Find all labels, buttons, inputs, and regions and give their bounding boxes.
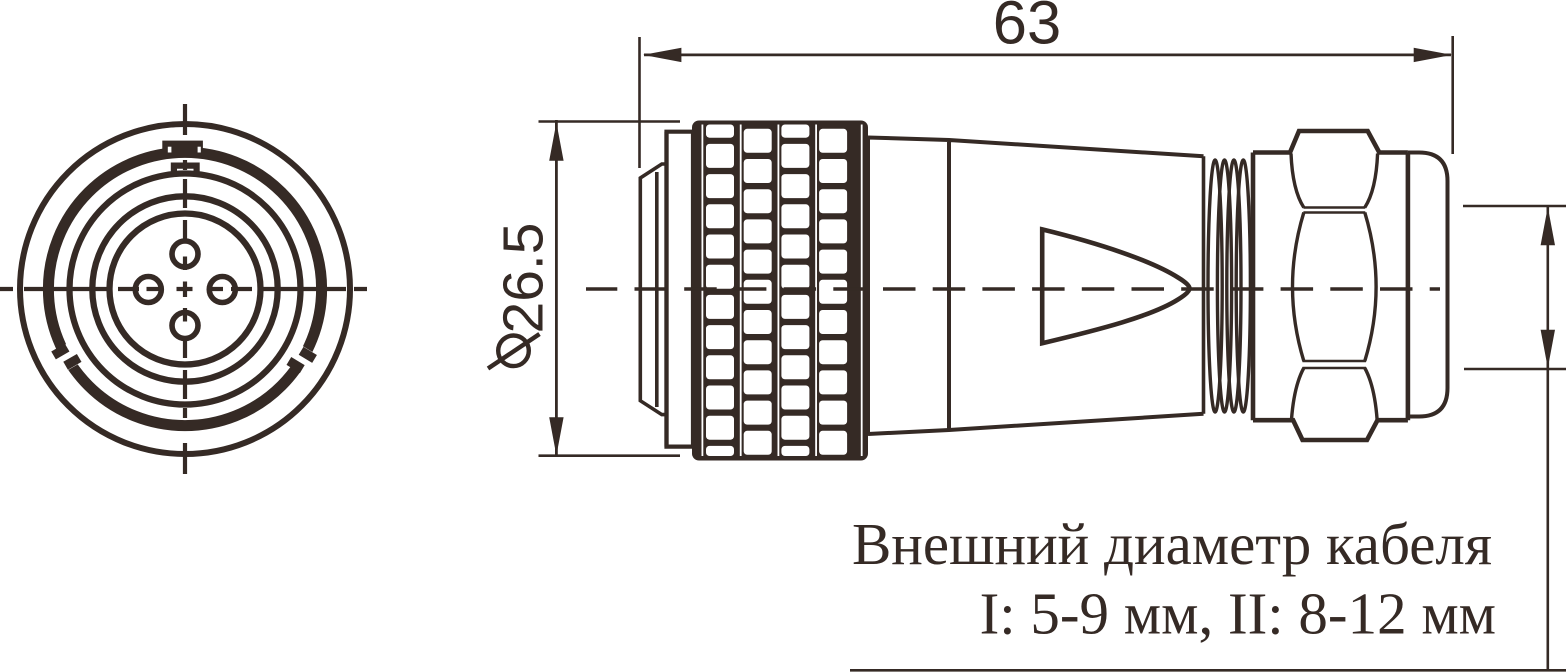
svg-text:26.5: 26.5 (492, 223, 556, 334)
svg-text:I: 5-9 мм, II: 8-12 мм: I: 5-9 мм, II: 8-12 мм (980, 581, 1496, 647)
svg-text:63: 63 (993, 0, 1061, 58)
svg-text:Внешний диаметр кабеля: Внешний диаметр кабеля (852, 511, 1492, 577)
